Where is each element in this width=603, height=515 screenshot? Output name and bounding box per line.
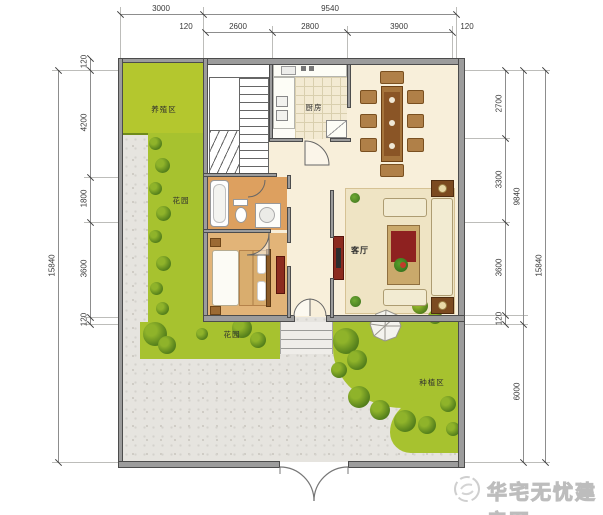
dim-label: 9840 [513, 175, 522, 219]
entry-porch-steps [280, 322, 333, 354]
wardrobe [276, 256, 285, 294]
sofa-right [431, 198, 453, 296]
coffee-table-cloth [391, 231, 416, 262]
nightstand [210, 238, 221, 247]
dim-label: 120 [455, 22, 479, 31]
yard-wall-top [118, 58, 205, 63]
sink-bowl [259, 207, 275, 223]
bathtub-basin [213, 184, 226, 223]
bathroom-door-swing [247, 179, 267, 199]
dim-line-left-inner [90, 58, 91, 324]
pillow [257, 281, 266, 301]
dim-label: 3600 [495, 246, 504, 290]
dim-line-right-outer [545, 70, 546, 462]
shrub-icon [418, 416, 436, 434]
sofa-top [383, 198, 427, 217]
stair-winders [209, 130, 240, 174]
table-lamp [438, 184, 447, 193]
yard-wall-right [458, 58, 465, 468]
bed-headboard [266, 249, 271, 307]
dim-line-top-outer [120, 14, 456, 15]
dining-chair [380, 71, 404, 84]
dim-ext [465, 462, 550, 463]
dining-chair [407, 90, 424, 104]
wall-living-left-a [330, 190, 334, 238]
stove-burner [309, 66, 314, 71]
dining-chair [360, 138, 377, 152]
place-setting [389, 143, 395, 149]
dining-chair [360, 114, 377, 128]
kitchen-label: 厨房 [294, 102, 334, 113]
place-setting [389, 120, 395, 126]
yard-wall-left [118, 58, 123, 468]
wall-kitchen-dining [347, 64, 351, 108]
shrub-icon [440, 396, 456, 412]
toilet-tank [233, 199, 248, 206]
house-wall-front-left [203, 315, 295, 322]
dining-chair [360, 90, 377, 104]
dim-label: 3900 [374, 22, 424, 31]
wall-stairhall-bottom [203, 173, 277, 177]
nightstand [210, 306, 221, 315]
stove-burner [301, 66, 306, 71]
dim-label: 120 [174, 22, 198, 31]
shrub-icon [149, 230, 162, 243]
shrub-icon [156, 302, 169, 315]
house-wall-front-right [326, 315, 465, 322]
dim-label: 15840 [48, 244, 57, 288]
dim-label: 4200 [80, 101, 89, 145]
shrub-icon [394, 410, 416, 432]
shrub-icon [150, 282, 163, 295]
floorplan-canvas: 3000 9540 120 2600 2800 3900 120 120 420… [0, 0, 603, 515]
breeding-area [123, 63, 205, 135]
watermark-logo-icon [451, 473, 483, 505]
wall-stair-kitchen [269, 64, 273, 142]
yard-wall-bottom-right [348, 461, 465, 468]
wall-hallway-c [287, 266, 291, 318]
dim-line-top-inner [205, 32, 453, 33]
dim-label: 3300 [495, 158, 504, 202]
dim-line-right-mid [523, 70, 524, 462]
shrub-icon [158, 336, 176, 354]
breeding-area-label: 养殖区 [140, 104, 188, 115]
potted-plant [350, 296, 361, 307]
wall-living-left-b [330, 278, 334, 318]
gate-door-swing [277, 466, 351, 510]
yard-wall-bottom-left [118, 461, 280, 468]
dim-label: 9540 [305, 4, 355, 13]
pillow [257, 254, 266, 274]
shrub-icon [196, 328, 208, 340]
refrigerator [326, 120, 347, 138]
dim-label: 2700 [495, 82, 504, 126]
table-lamp [438, 301, 447, 310]
front-door-swing [292, 297, 328, 317]
kitchen-appliance [276, 110, 288, 121]
potted-plant [350, 193, 360, 203]
watermark-site-name: 华宅无忧建房网 [487, 476, 603, 515]
stair-landing [209, 77, 240, 131]
dim-label: 3600 [80, 247, 89, 291]
dim-line-left-outer [58, 70, 59, 462]
wall-hallway-b [287, 207, 291, 243]
shrub-icon [250, 332, 266, 348]
dim-ext [465, 222, 510, 223]
dim-label: 120 [80, 298, 89, 342]
planting-area-label: 种植区 [408, 377, 456, 388]
shrub-icon [155, 158, 170, 173]
side-garden-label: 花园 [161, 195, 201, 206]
kitchen-appliance [276, 96, 288, 107]
shrub-icon [149, 137, 162, 150]
parasol-icon [366, 308, 406, 346]
wall-hallway-a [287, 175, 291, 189]
dim-label: 120 [495, 297, 504, 341]
dining-chair [407, 138, 424, 152]
dim-ext [465, 138, 510, 139]
kitchen-door-swing [303, 140, 330, 167]
shrub-icon [370, 400, 390, 420]
shrub-icon [347, 350, 367, 370]
shrub-icon [156, 256, 171, 271]
bedroom-door-swing [245, 231, 271, 257]
shrub-icon [331, 362, 347, 378]
front-garden-label: 花园 [212, 329, 252, 340]
shrub-icon [149, 182, 162, 195]
dim-line-right-inner [505, 70, 506, 324]
place-setting [389, 97, 395, 103]
shrub-icon [156, 206, 171, 221]
dim-label: 15840 [535, 244, 544, 288]
dim-label: 6000 [513, 370, 522, 414]
living-room-label: 客厅 [340, 245, 380, 256]
dim-label: 2600 [213, 22, 263, 31]
dim-ext [52, 462, 118, 463]
shrub-icon [348, 386, 370, 408]
dim-label: 2800 [285, 22, 335, 31]
dining-chair [380, 164, 404, 177]
house-wall-top [203, 58, 465, 65]
dim-label: 1800 [80, 177, 89, 221]
toilet [235, 207, 247, 223]
wall-kitchen-bottom-a [269, 138, 303, 142]
house-wall-left [203, 58, 208, 322]
dim-label: 120 [80, 40, 89, 84]
wall-kitchen-bottom-b [330, 138, 351, 142]
sofa-bottom [383, 289, 427, 306]
bed-blanket [212, 250, 239, 306]
dim-label: 3000 [136, 4, 186, 13]
dining-chair [407, 114, 424, 128]
flower-blossom [400, 262, 406, 268]
stair-flight [239, 77, 269, 174]
kitchen-sink [281, 66, 296, 75]
